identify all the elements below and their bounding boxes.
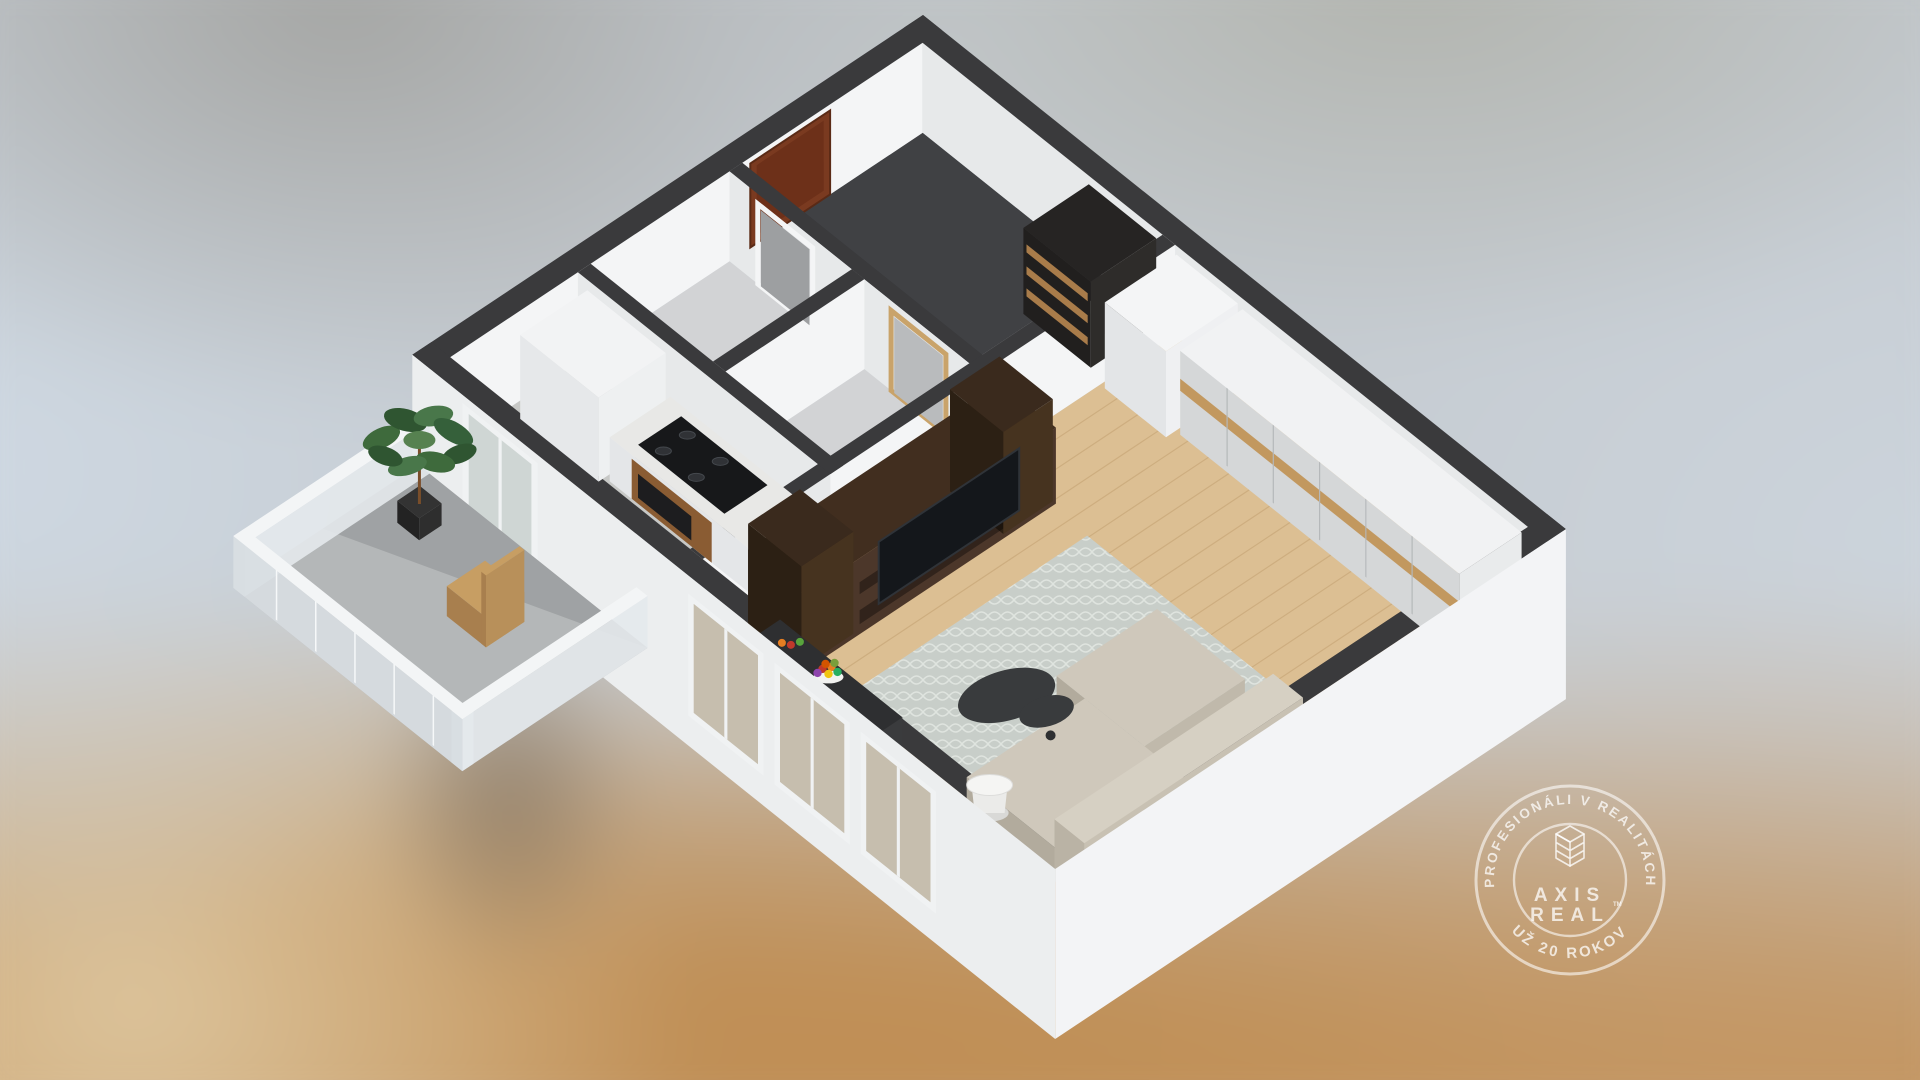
apartment-model xyxy=(233,15,1566,1039)
brand-axis: AXIS xyxy=(1534,885,1606,906)
watermark-arc-top: PROFESIONÁLI V REALITÁCH xyxy=(1482,792,1658,888)
screenshot-stage: PROFESIONÁLI V REALITÁCH UŽ 20 ROKOV AXI… xyxy=(0,0,1920,1080)
brand-real: REAL xyxy=(1530,905,1610,926)
axis-real-building-icon xyxy=(1556,826,1584,866)
brand-trademark: TM xyxy=(1613,902,1622,908)
watermark-arc-bottom: UŽ 20 ROKOV xyxy=(1508,922,1632,962)
watermark-badge: PROFESIONÁLI V REALITÁCH UŽ 20 ROKOV AXI… xyxy=(1476,786,1664,974)
floorplan-3d-render: PROFESIONÁLI V REALITÁCH UŽ 20 ROKOV AXI… xyxy=(0,0,1920,1080)
